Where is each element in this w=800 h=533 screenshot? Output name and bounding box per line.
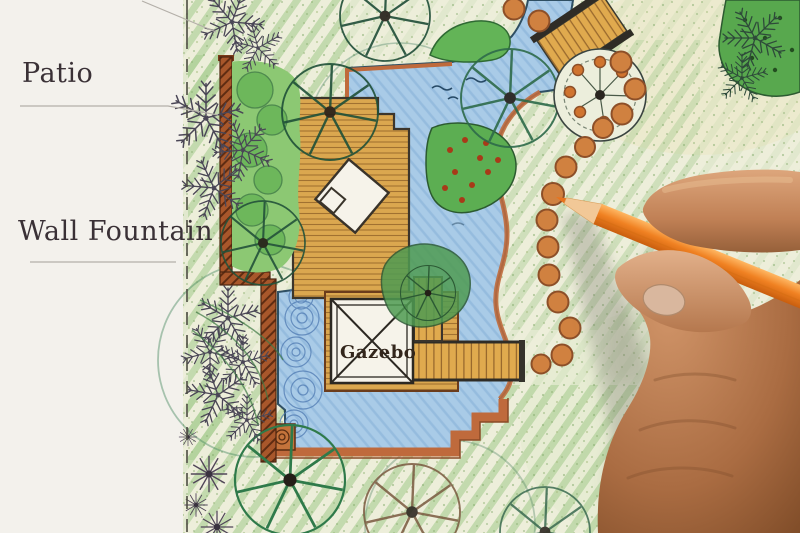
patio-label: Patio: [22, 58, 93, 89]
boardwalk: [411, 342, 523, 380]
gazebo-label: Gazebo: [340, 342, 416, 363]
planter-tree-canopy: [381, 244, 470, 327]
boardwalk-end-cap: [519, 340, 525, 382]
wall-fountain-label: Wall Fountain: [18, 216, 213, 247]
landscape-plan-photo: Patio Wall Fountain Gazebo: [0, 0, 800, 533]
